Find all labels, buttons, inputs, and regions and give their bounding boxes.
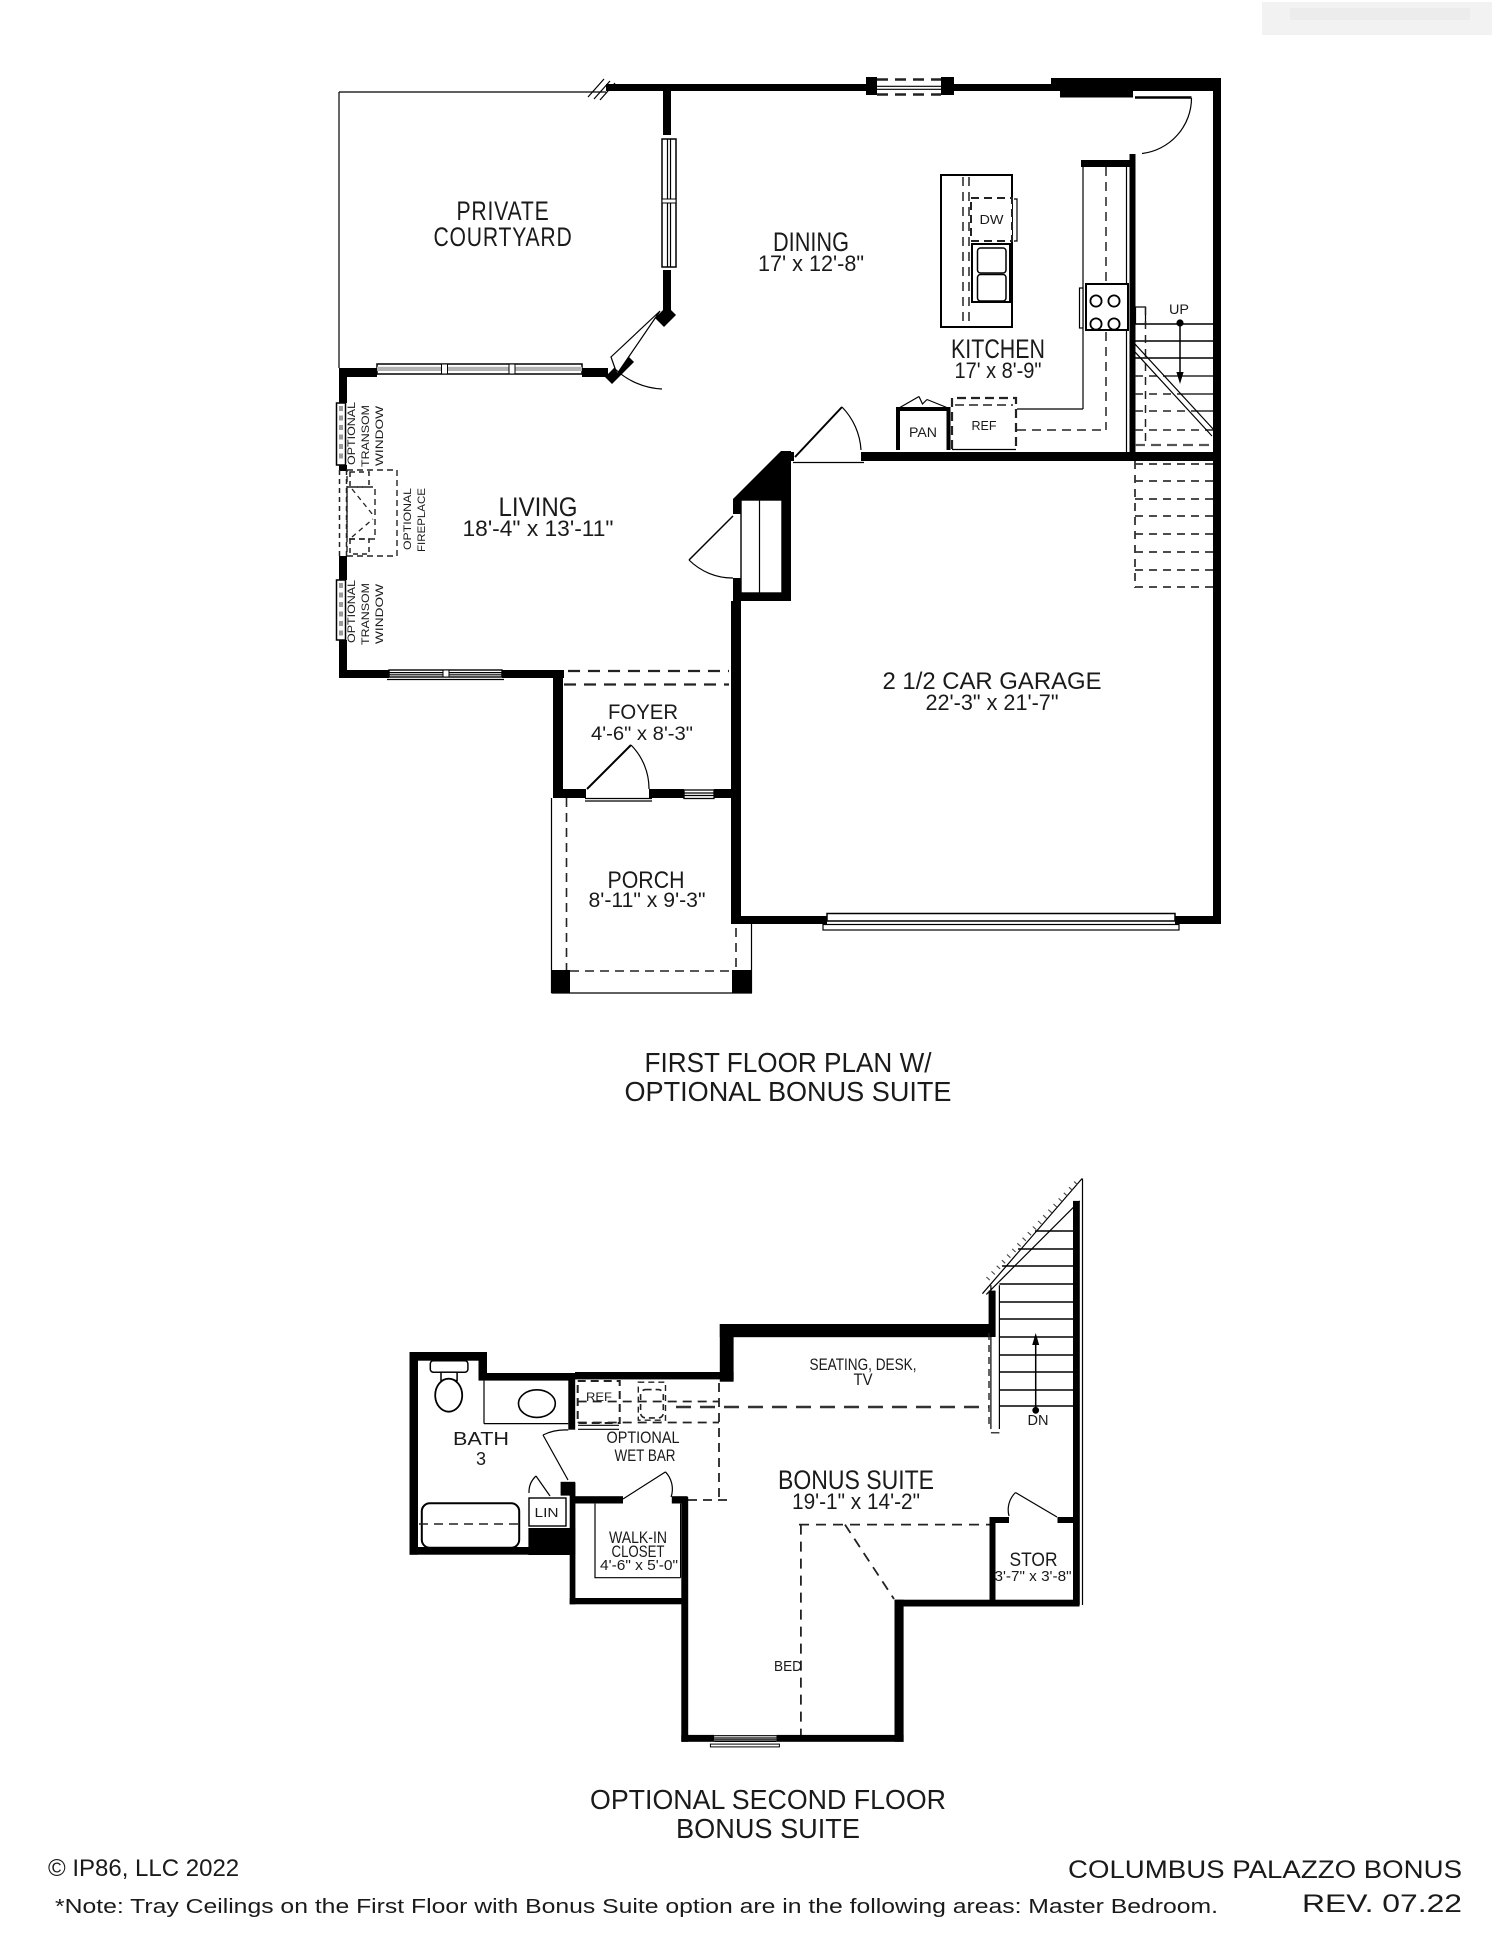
svg-text:TRANSOM: TRANSOM (360, 405, 372, 467)
svg-text:COURTYARD: COURTYARD (434, 222, 573, 252)
svg-text:3'-7" x 3'-8": 3'-7" x 3'-8" (995, 1568, 1072, 1585)
svg-text:17' x 12'-8": 17' x 12'-8" (758, 251, 864, 276)
svg-text:WINDOW: WINDOW (374, 583, 386, 644)
svg-text:TRANSOM: TRANSOM (360, 583, 372, 645)
svg-text:FIRST FLOOR PLAN W/: FIRST FLOOR PLAN W/ (645, 1047, 932, 1078)
svg-text:LIN: LIN (535, 1505, 559, 1520)
svg-text:19'-1" x 14'-2": 19'-1" x 14'-2" (792, 1489, 920, 1514)
svg-text:FIREPLACE: FIREPLACE (416, 488, 428, 552)
svg-text:FOYER: FOYER (608, 701, 678, 724)
svg-text:*Note: Tray Ceilings on the F: *Note: Tray Ceilings on the First Floor … (55, 1896, 1218, 1918)
svg-text:TV: TV (854, 1370, 874, 1389)
svg-text:BED: BED (774, 1658, 802, 1675)
svg-text:18'-4" x 13'-11": 18'-4" x 13'-11" (463, 516, 614, 541)
svg-text:22'-3" x 21'-7": 22'-3" x 21'-7" (926, 690, 1059, 715)
svg-text:© IP86, LLC 2022: © IP86, LLC 2022 (48, 1855, 239, 1882)
svg-text:4'-6" x 8'-3": 4'-6" x 8'-3" (591, 724, 693, 745)
svg-text:OPTIONAL: OPTIONAL (607, 1428, 680, 1447)
svg-text:OPTIONAL SECOND FLOOR: OPTIONAL SECOND FLOOR (590, 1784, 946, 1815)
svg-text:OPTIONAL: OPTIONAL (346, 402, 358, 465)
svg-text:OPTIONAL BONUS SUITE: OPTIONAL BONUS SUITE (625, 1076, 952, 1107)
svg-text:BONUS SUITE: BONUS SUITE (676, 1813, 860, 1844)
svg-text:3: 3 (476, 1449, 486, 1469)
svg-text:8'-11" x 9'-3": 8'-11" x 9'-3" (589, 889, 706, 912)
svg-text:DN: DN (1028, 1412, 1049, 1429)
svg-text:COLUMBUS PALAZZO BONUS: COLUMBUS PALAZZO BONUS (1068, 1856, 1462, 1884)
svg-text:UP: UP (1169, 301, 1189, 317)
svg-text:REF: REF (972, 418, 997, 433)
svg-text:WET BAR: WET BAR (615, 1446, 676, 1465)
svg-text:4'-6" x 5'-0": 4'-6" x 5'-0" (600, 1557, 678, 1574)
svg-text:PAN: PAN (909, 424, 937, 440)
svg-text:DW: DW (980, 212, 1005, 227)
svg-text:BATH: BATH (453, 1429, 509, 1449)
svg-text:REV. 07.22: REV. 07.22 (1302, 1890, 1462, 1918)
svg-text:WINDOW: WINDOW (374, 405, 386, 466)
svg-text:OPTIONAL: OPTIONAL (402, 488, 414, 550)
svg-text:17' x 8'-9": 17' x 8'-9" (955, 358, 1042, 383)
svg-text:OPTIONAL: OPTIONAL (346, 580, 358, 643)
